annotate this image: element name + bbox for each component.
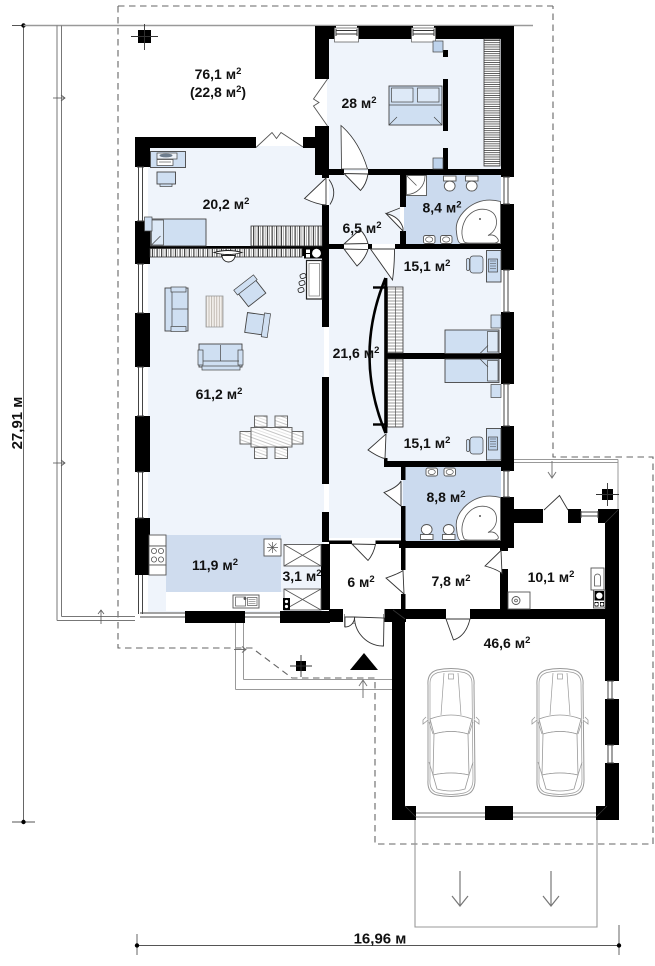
svg-text:76,1 м2: 76,1 м2 [195,66,242,82]
svg-text:10,1 м2: 10,1 м2 [528,569,575,585]
svg-text:8,4 м2: 8,4 м2 [422,200,461,216]
svg-text:11,9 м2: 11,9 м2 [192,557,238,573]
svg-text:15,1 м2: 15,1 м2 [404,435,451,451]
svg-text:6,5 м2: 6,5 м2 [342,220,381,236]
svg-text:3,1 м2: 3,1 м2 [282,568,321,584]
svg-text:16,96 м: 16,96 м [354,931,407,948]
svg-text:46,6 м2: 46,6 м2 [484,635,531,651]
svg-text:8,8 м2: 8,8 м2 [426,489,465,505]
svg-text:15,1 м2: 15,1 м2 [404,258,451,274]
svg-text:21,6 м2: 21,6 м2 [333,345,380,361]
svg-text:27,91 м: 27,91 м [9,397,26,450]
svg-text:7,8 м2: 7,8 м2 [431,573,470,589]
svg-text:61,2 м2: 61,2 м2 [196,386,243,402]
svg-text:20,2 м2: 20,2 м2 [203,196,250,212]
